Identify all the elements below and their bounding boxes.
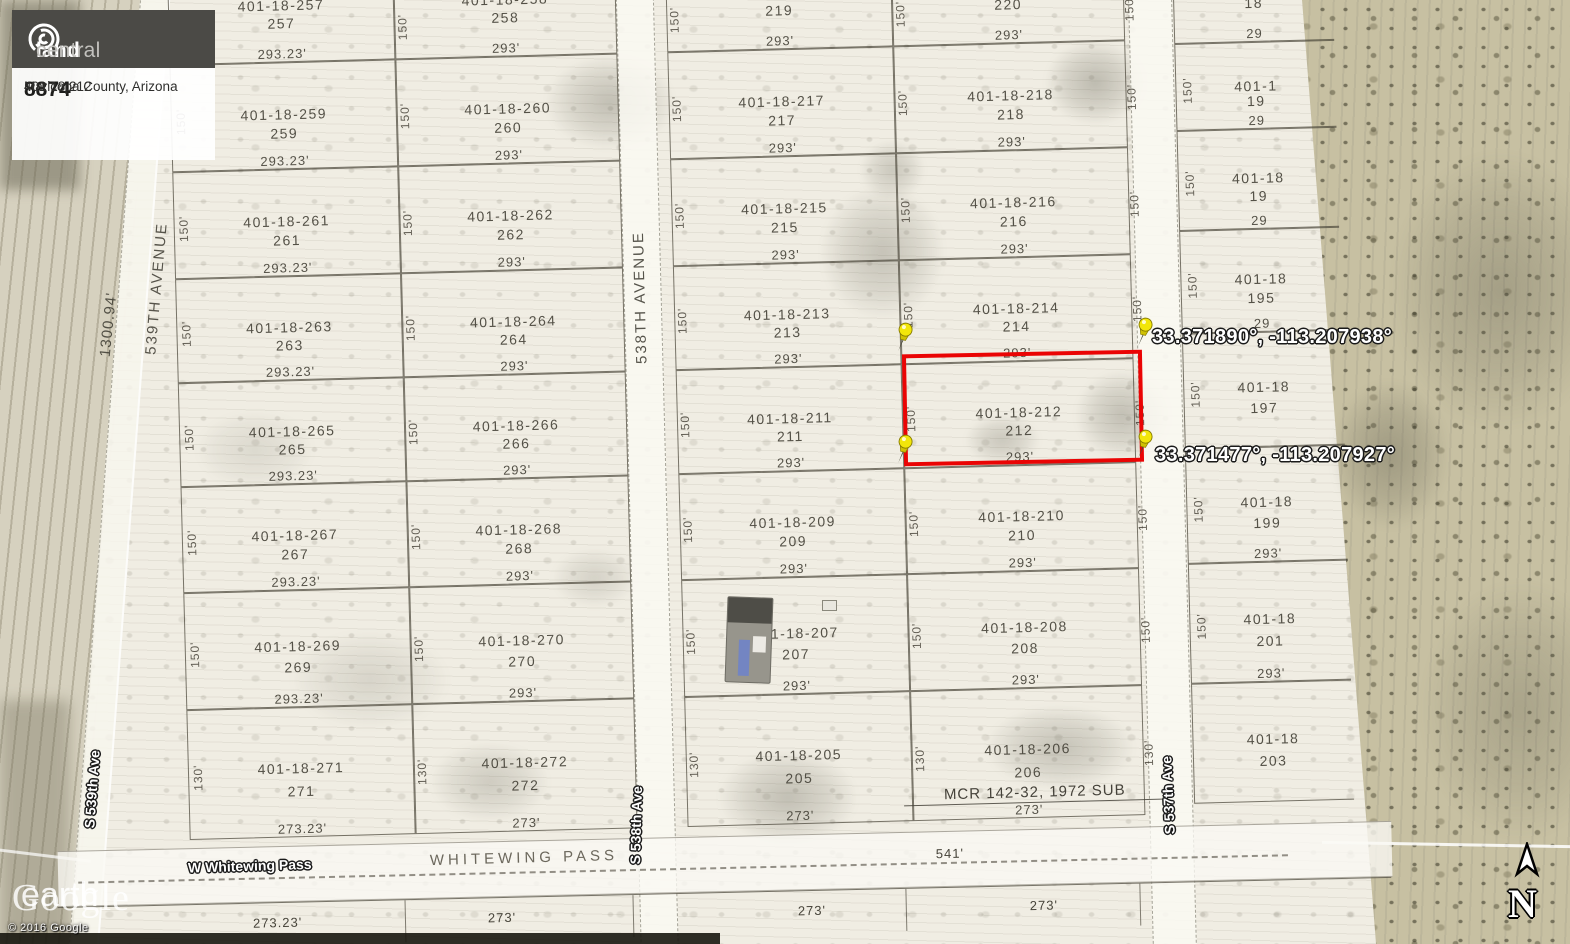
bottom-parcel-dim: 273.23' <box>253 915 303 931</box>
parcel-cell: 401-18-218218293' <box>893 40 1128 153</box>
parcel-lot-label: 206 <box>913 761 1143 783</box>
parcel-lot-label: 18 <box>1174 0 1333 13</box>
parcel-lot-label: 213 <box>676 322 900 344</box>
parcel-side-dim: 150' <box>667 7 682 34</box>
parcel-cell: 401-18-267267293.23' <box>181 481 410 593</box>
parcel-lot-label: 208 <box>910 637 1140 659</box>
north-label: N <box>1508 880 1537 927</box>
parcel-apn-label: 401-18 <box>1190 609 1349 629</box>
parcel-apn-label: 401-18-216 <box>898 191 1128 213</box>
parcel-cell: 401-18-205205273' <box>684 691 913 827</box>
parcel-lot-label: 19 <box>1179 186 1338 206</box>
parcel-lot-label: 258 <box>395 7 615 29</box>
parcel-side-dim: 150' <box>1188 381 1203 408</box>
parcel-dim-label: 273' <box>688 805 912 826</box>
parcel-apn-label: 401-18 <box>1193 729 1352 749</box>
parcel-apn-label: 401-18-266 <box>406 414 626 436</box>
parcel-apn-label: 401-18-213 <box>675 303 899 325</box>
parcel-lot-label: 209 <box>681 531 905 553</box>
ge-road-label-whitewing: W Whitewing Pass <box>188 856 312 876</box>
parcel-side-dim: 150' <box>182 424 197 451</box>
map-pin-icon <box>891 434 917 466</box>
parcel-side-dim: 150' <box>1183 170 1198 197</box>
parcel-lot-label: 218 <box>896 103 1126 125</box>
parcel-cell: 401-18-220220293' <box>891 0 1125 46</box>
bottom-parcel-dim: 273' <box>1030 897 1059 913</box>
parcel-cell: 219293' <box>665 0 893 52</box>
parcel-side-dim: 150' <box>895 89 910 116</box>
parcel-cell: 401-18-216216293' <box>896 147 1131 260</box>
north-arrow: N <box>1504 842 1564 932</box>
parcel-apn-label: 401-18-268 <box>409 519 629 541</box>
parcel-side-dim: 130' <box>1141 739 1156 766</box>
parcel-lot-label: 220 <box>893 0 1123 15</box>
parcel-side-dim: 150' <box>1124 83 1139 110</box>
parcel-lot-label: 265 <box>180 439 404 461</box>
parcel-side-dim: 150' <box>675 307 690 334</box>
map-pin-icon <box>891 322 917 354</box>
parcel-side-dim: 150' <box>1127 190 1142 217</box>
parcel-apn-label: 401-18 <box>1184 377 1343 397</box>
aerial-parcel-map: 538TH AVENUE401-18-257257293.23'401-18-2… <box>0 0 1570 944</box>
parcel-lot-label: 267 <box>183 544 407 566</box>
pin-coordinate-label: 33.371890°, -113.207938° <box>1152 326 1392 349</box>
parcel-side-dim: 150' <box>898 196 913 223</box>
parcel-apn-label: 401-18-262 <box>400 204 620 226</box>
parcel-side-dim: 150' <box>893 1 908 28</box>
parcel-cell: 401-18201293' <box>1188 560 1351 684</box>
parcel-lot-label: 271 <box>189 781 413 803</box>
parcel-apn-label: 401-18-205 <box>687 744 911 766</box>
plat-road-label-whitewing: WHITEWING PASS <box>430 847 619 869</box>
bottom-dark-bar <box>0 933 720 944</box>
parcel-side-dim: 150' <box>409 524 424 551</box>
parcel-lot-label: 203 <box>1194 750 1353 770</box>
parcel-lot-label: 195 <box>1182 287 1341 307</box>
parcel-lot-label: 201 <box>1191 630 1350 650</box>
parcel-side-dim: 150' <box>1185 272 1200 299</box>
parcel-apn-label: 401-18-264 <box>403 310 623 332</box>
parcel-dim-label: 273' <box>416 812 636 833</box>
ge-road-label-s538: S 538th Ave <box>627 786 645 865</box>
parcel-cell: 401-18-213213293' <box>673 260 902 370</box>
parcel-lot-label: 197 <box>1185 397 1344 417</box>
parcel-side-dim: 150' <box>678 411 693 438</box>
parcel-side-dim: 150' <box>403 315 418 342</box>
parcel-side-dim: 150' <box>1138 616 1153 643</box>
parcel-cell: 401-18-263263293.23' <box>175 273 404 383</box>
parcel-side-dim: 150' <box>683 628 698 655</box>
copyright-text: © 2016 Google <box>8 922 89 934</box>
parcel-cell: 401-18-270270293' <box>409 581 634 704</box>
parcel-side-dim: 150' <box>1180 77 1195 104</box>
parcel-cell: 401-18-214214293' <box>899 254 1134 364</box>
parcel-lot-label: 270 <box>412 650 632 672</box>
parcel-cell: 401-18-269269293.23' <box>183 587 412 710</box>
road-dim-541: 541' <box>936 846 965 862</box>
parcel-apn-label: 401-18-270 <box>411 629 631 651</box>
parcel-apn-label: 401-18-217 <box>669 90 893 112</box>
parcel-apn-label: 401-18-218 <box>895 84 1125 106</box>
parcel-cell: 401-181929 <box>1177 127 1340 231</box>
parcel-cell: 401-18-262262293' <box>398 161 623 274</box>
parcel-cell: 401-1819529 <box>1179 227 1342 334</box>
parcel-grid: 538TH AVENUE401-18-257257293.23'401-18-2… <box>0 0 1570 944</box>
parcel-apn-label: 401-18 <box>1187 492 1346 512</box>
parcel-side-dim: 150' <box>411 635 426 662</box>
parcel-side-dim: 150' <box>680 516 695 543</box>
listing-apn: 401 18 212 <box>24 78 92 96</box>
parcel-side-dim: 150' <box>1135 505 1150 532</box>
parcel-apn-label: 401-18-267 <box>183 525 407 547</box>
parcel-lot-label: 261 <box>175 229 399 251</box>
parcel-cell: 401-18-211211293' <box>676 364 905 474</box>
parcel-cell: 401-18-271271273.23' <box>186 704 415 840</box>
building-roof <box>728 597 773 624</box>
parcel-side-dim: 130' <box>415 758 430 785</box>
parcel-apn-label: 401-18 <box>1179 168 1338 188</box>
parcel-cell: 401-18-264264293' <box>401 268 626 378</box>
parcel-lot-label: 272 <box>415 775 635 797</box>
parcel-lot-label: 216 <box>899 210 1129 232</box>
parcel-side-dim: 130' <box>687 751 702 778</box>
parcel-cell: 401-18-207207293' <box>681 574 910 697</box>
building-lot-207 <box>725 596 774 684</box>
parcel-cell: 401-11929 <box>1174 40 1336 131</box>
plat-road-label-538: 538TH AVENUE <box>630 231 650 364</box>
parcel-cell: 401-18-215215293' <box>670 153 899 266</box>
building-blue-door <box>738 640 750 676</box>
parcel-apn-label: 401-18-260 <box>398 97 618 119</box>
highlighted-parcel-outline <box>902 350 1144 467</box>
parcel-lot-label: 260 <box>398 117 618 139</box>
parcel-apn-label: 401-18-207 <box>683 622 907 644</box>
parcel-side-dim: 150' <box>188 641 203 668</box>
building-white-patch <box>753 636 767 652</box>
parcel-side-dim: 130' <box>913 745 928 772</box>
parcel-side-dim: 150' <box>406 419 421 446</box>
ge-road-label-s537: S 537th Ave <box>1158 756 1177 835</box>
parcel-side-dim: 150' <box>1191 496 1206 523</box>
parcel-cell: 401-18-208208293' <box>907 568 1142 691</box>
parcel-cell: 401-18-217217293' <box>667 46 896 159</box>
parcel-apn-label: 401-18-269 <box>186 635 410 657</box>
parcel-cell: 401-18-272272273' <box>412 698 637 834</box>
parcel-lot-label: 205 <box>687 768 911 790</box>
parcel-lot-label: 19 <box>1177 91 1336 111</box>
parcel-side-dim: 150' <box>909 622 924 649</box>
parcel-cell: 401-18-209209293' <box>678 468 907 580</box>
plat-road-label-538-text: 538TH AVENUE <box>630 231 650 364</box>
pin-coordinate-label: 33.371477°, -113.207927° <box>1155 444 1395 467</box>
parcel-cell: 401-18-265265293.23' <box>178 377 407 487</box>
parcel-cell: 401-18203 <box>1191 680 1354 804</box>
parcel-apn-label: 401-18-208 <box>909 616 1139 638</box>
north-arrow-icon <box>1504 842 1550 880</box>
parcel-lot-label: 217 <box>670 109 894 131</box>
parcel-apn-label: 401-18 <box>1181 269 1340 289</box>
parcel-lot-label: 214 <box>901 316 1131 338</box>
parcel-cell: 1829 <box>1172 0 1334 44</box>
parcel-lot-label: 269 <box>186 656 410 678</box>
listing-info-card: 8874 Maricopa County, Arizona 401 18 212 <box>12 68 215 160</box>
parcel-side-dim: 150' <box>179 320 194 347</box>
parcel-side-dim: 150' <box>398 102 413 129</box>
parcel-lot-label: 219 <box>667 0 891 21</box>
parcel-side-dim: 130' <box>191 764 206 791</box>
parcel-cell: 401-18-268268293' <box>406 475 631 587</box>
bottom-parcel-dim: 273' <box>488 910 517 926</box>
parcel-lot-label: 199 <box>1188 512 1347 532</box>
parcel-cell: 401-18-266266293' <box>404 371 629 481</box>
parcel-lot-label: 263 <box>178 335 402 357</box>
parcel-lot-label: 268 <box>409 538 629 560</box>
parcel-dim-label: 273.23' <box>190 818 414 839</box>
parcel-apn-label: 401-18-206 <box>912 738 1142 760</box>
parcel-lot-label: 262 <box>401 224 621 246</box>
parcel-side-dim: 150' <box>1122 0 1137 21</box>
parcel-lot-label: 215 <box>673 216 897 238</box>
parcel-apn-label: 401-18-210 <box>906 506 1136 528</box>
parcel-side-dim: 150' <box>1194 613 1209 640</box>
parcel-side-dim: 150' <box>185 529 200 556</box>
map-pin-icon <box>1131 429 1157 461</box>
parcel-side-dim: 150' <box>672 202 687 229</box>
parcel-apn-label: 401-18-272 <box>415 751 635 773</box>
parcel-lot-label: 264 <box>404 329 624 351</box>
parcel-apn-label: 401-18-261 <box>174 210 398 232</box>
parcel-cell: 401-18-261261293.23' <box>172 166 401 279</box>
bottom-parcel-dim: 273' <box>798 903 827 919</box>
parcel-apn-label: 401-18-215 <box>672 197 896 219</box>
parcel-side-dim: 150' <box>176 215 191 242</box>
parcel-side-dim: 150' <box>400 209 415 236</box>
landcentral-logo-card: landcentral <box>12 10 215 68</box>
parcel-side-dim: 150' <box>906 511 921 538</box>
parcel-apn-label: 401-18-265 <box>180 420 404 442</box>
parcel-lot-label: 211 <box>678 426 902 448</box>
parcel-cell: 401-18-260260293' <box>395 54 620 167</box>
parcel-cell: 401-18-206206273'MCR 142-32, 1972 SUB <box>910 685 1145 821</box>
parcel-lot-label: 266 <box>406 433 626 455</box>
parcel-lot-label: 210 <box>907 525 1137 547</box>
shed-lot-207 <box>822 600 837 611</box>
parcel-cell: 401-18-258258293' <box>394 0 618 59</box>
parcel-lot-label: 207 <box>684 643 908 665</box>
parcel-cell: 401-18-210210293' <box>904 462 1139 574</box>
parcel-apn-label: 401-18-209 <box>680 512 904 534</box>
parcel-apn-label: 401-18-271 <box>189 757 413 779</box>
parcel-side-dim: 150' <box>395 14 410 41</box>
parcel-side-dim: 150' <box>669 95 684 122</box>
